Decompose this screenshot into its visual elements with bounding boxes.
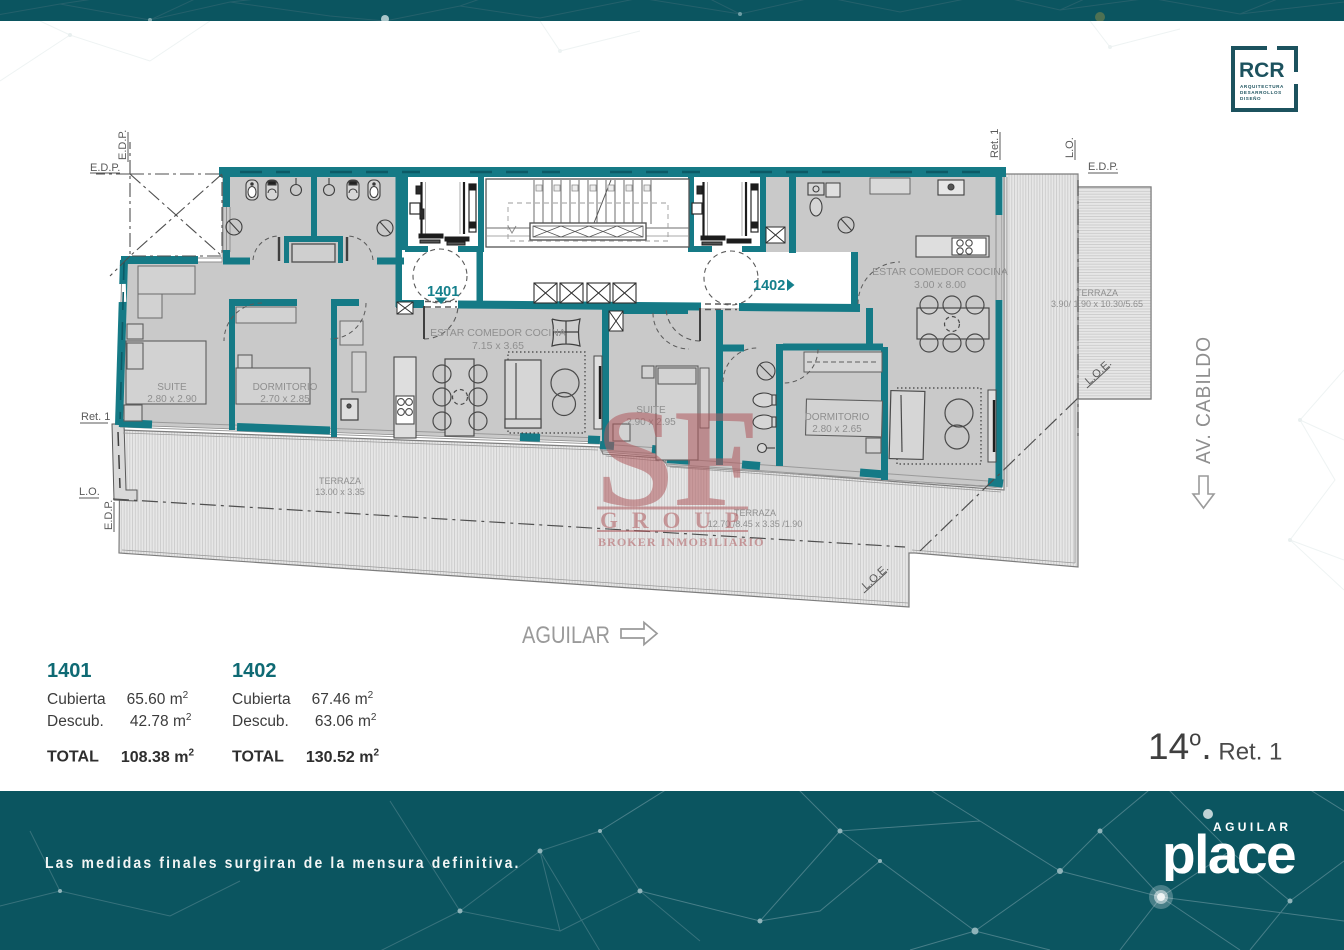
svg-text:DORMITORIO: DORMITORIO [253,382,318,393]
svg-text:2.80 x 2.90: 2.80 x 2.90 [147,394,197,405]
svg-text:Ret. 1: Ret. 1 [81,411,110,423]
svg-text:ESTAR COMEDOR COCINA: ESTAR COMEDOR COCINA [872,266,1008,278]
svg-text:L.O.: L.O. [79,486,100,498]
svg-text:DORMITORIO: DORMITORIO [805,412,870,423]
svg-text:2.70 x 2.85: 2.70 x 2.85 [260,394,310,405]
svg-text:GROUP: GROUP [600,508,753,533]
svg-text:13.00 x 3.35: 13.00 x 3.35 [315,487,365,497]
svg-text:E.D.P.: E.D.P. [1088,161,1118,173]
svg-text:SUITE: SUITE [157,382,187,393]
svg-text:ESTAR COMEDOR COCINA: ESTAR COMEDOR COCINA [430,327,566,339]
svg-text:3.90/ 1.90 x 10.30/5.65: 3.90/ 1.90 x 10.30/5.65 [1051,299,1143,309]
svg-text:TERRAZA: TERRAZA [1076,288,1118,298]
svg-text:TERRAZA: TERRAZA [319,476,361,486]
svg-text:7.15 x 3.65: 7.15 x 3.65 [472,340,524,352]
svg-text:E.D.P.: E.D.P. [103,500,115,530]
svg-text:1402: 1402 [753,278,785,294]
svg-text:AGUILAR: AGUILAR [522,622,610,649]
svg-text:2.80 x 2.65: 2.80 x 2.65 [812,424,862,435]
svg-text:E.D.P.: E.D.P. [90,162,120,174]
svg-text:3.00 x 8.00: 3.00 x 8.00 [914,279,966,291]
svg-text:BROKER INMOBILIARIO: BROKER INMOBILIARIO [598,535,765,549]
svg-text:AV. CABILDO: AV. CABILDO [1193,336,1215,464]
